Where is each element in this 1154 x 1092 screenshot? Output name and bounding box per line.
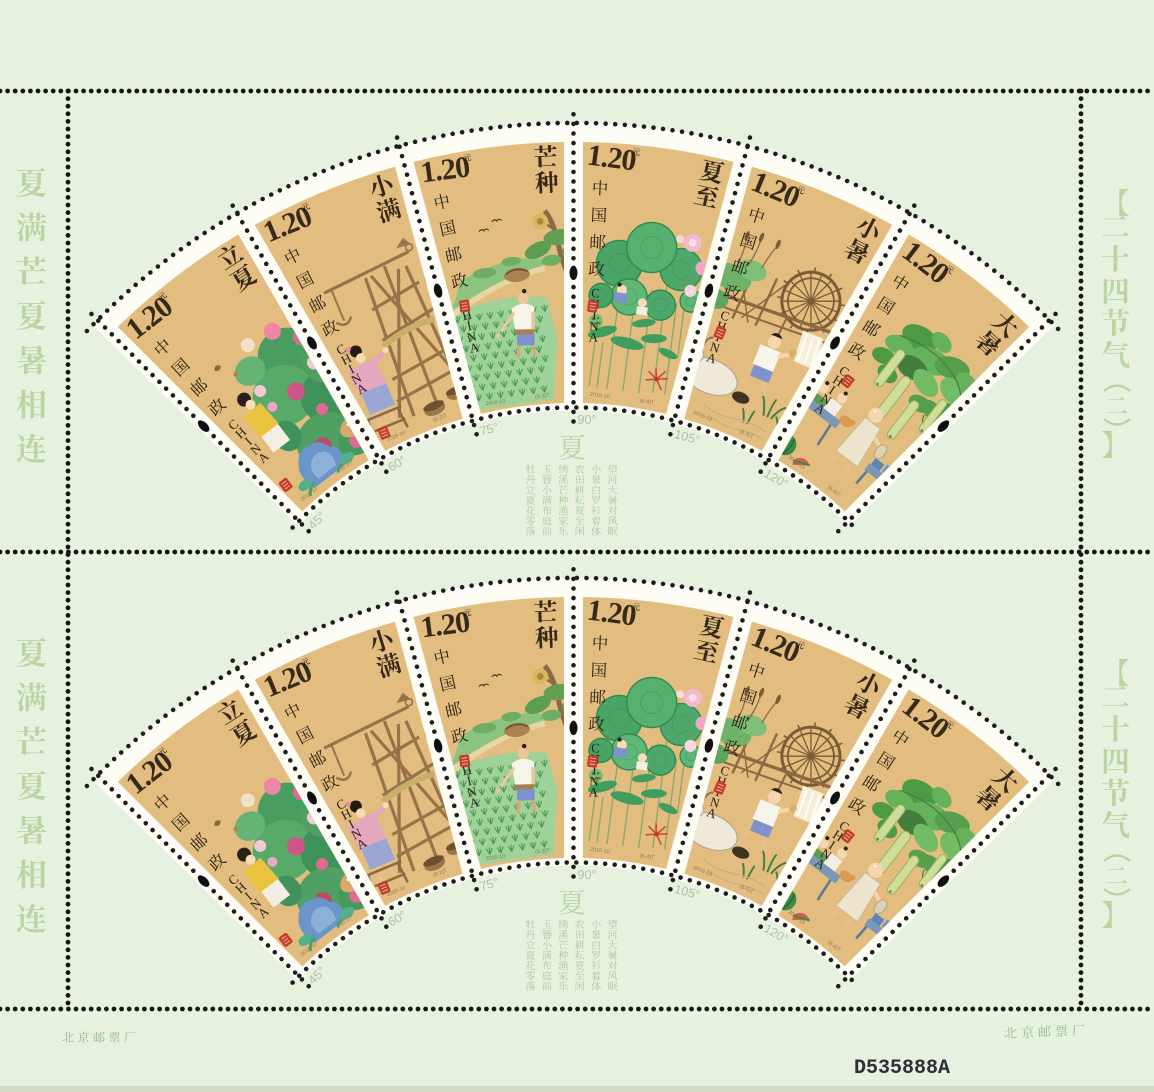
svg-text:90°: 90° bbox=[578, 868, 597, 882]
svg-text:A: A bbox=[589, 329, 600, 344]
svg-text:D535888A: D535888A bbox=[854, 1057, 950, 1080]
svg-text:90°: 90° bbox=[578, 413, 597, 427]
svg-text:A: A bbox=[589, 784, 600, 799]
